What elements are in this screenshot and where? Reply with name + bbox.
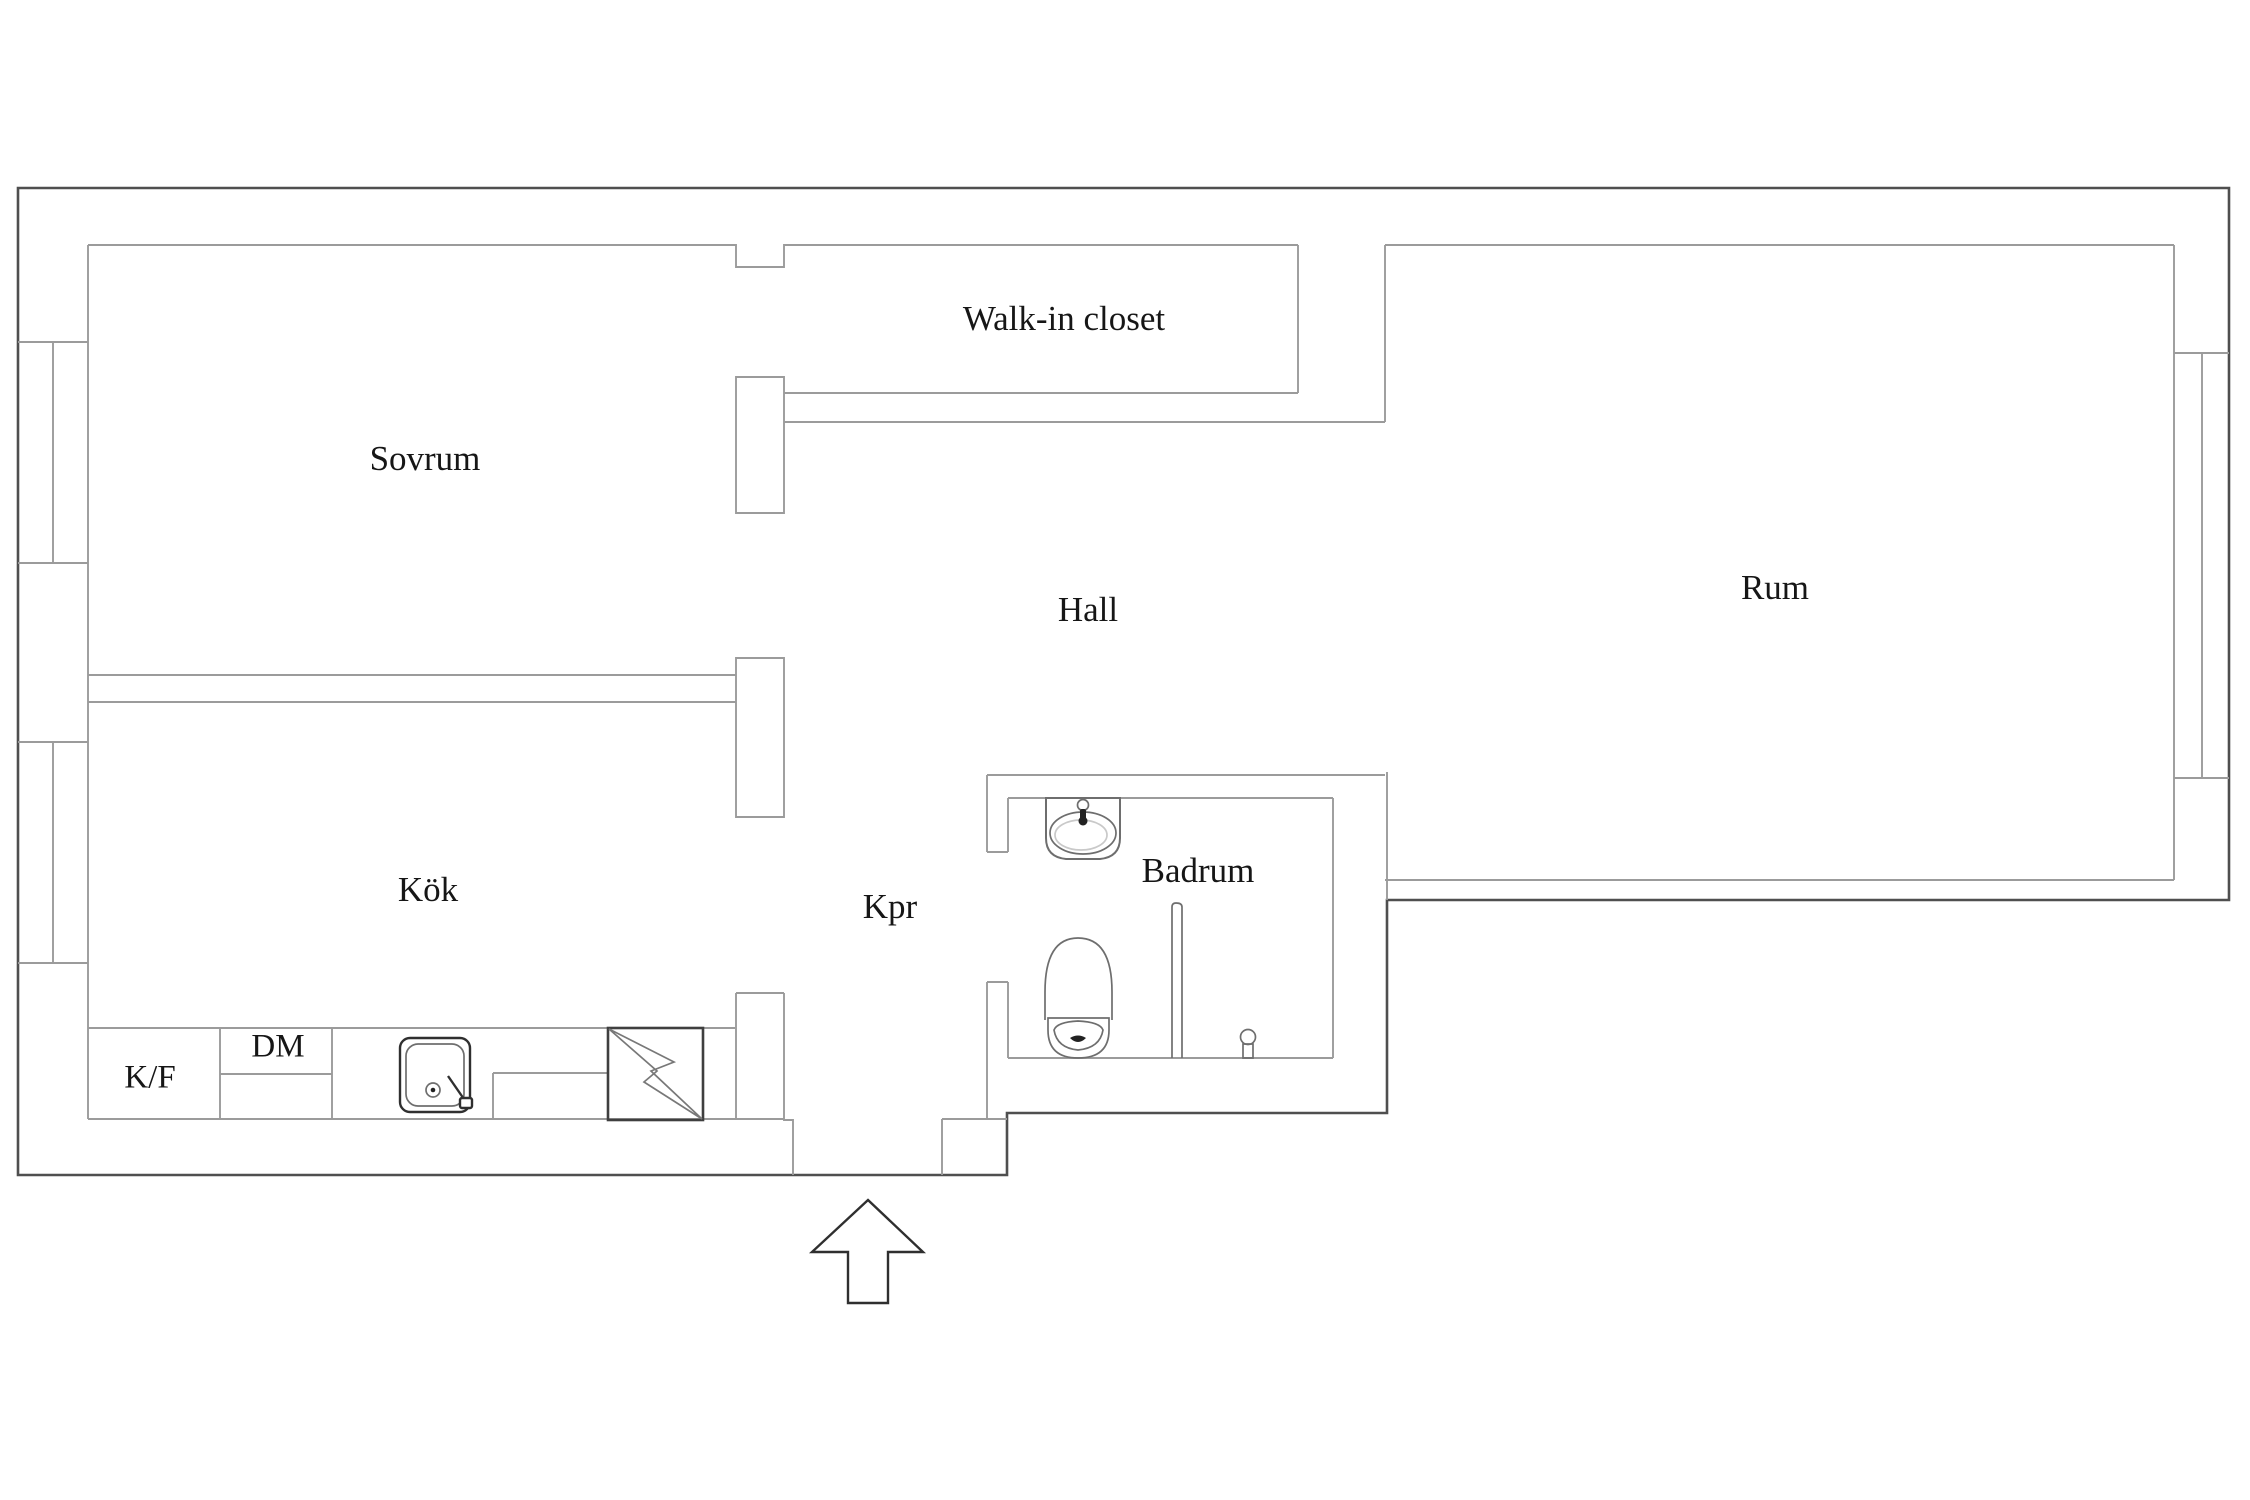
label-badrum: Badrum bbox=[1142, 851, 1255, 890]
right-window bbox=[2174, 353, 2229, 778]
toilet-seat-arc bbox=[1054, 1021, 1103, 1050]
washbasin-icon bbox=[1046, 798, 1120, 859]
floor-plan-drawing: Sovrum Walk-in closet Hall Rum Kök Kpr B… bbox=[0, 0, 2250, 1500]
shower-tap-head bbox=[1241, 1030, 1256, 1045]
toilet-flush bbox=[1070, 1036, 1086, 1043]
sovrum-kok-wall bbox=[88, 675, 736, 702]
floor-plan-page: Sovrum Walk-in closet Hall Rum Kök Kpr B… bbox=[0, 0, 2250, 1500]
label-sovrum: Sovrum bbox=[370, 439, 481, 478]
shower-area bbox=[1172, 903, 1256, 1058]
label-hall: Hall bbox=[1058, 590, 1119, 629]
bottom-inner-wall bbox=[88, 1119, 1007, 1175]
label-rum: Rum bbox=[1741, 568, 1809, 607]
left-wall-and-windows bbox=[18, 245, 88, 1119]
label-kpr: Kpr bbox=[863, 887, 918, 926]
entrance-arrow-icon bbox=[812, 1200, 923, 1303]
label-kok: Kök bbox=[398, 870, 459, 909]
central-wall-piers bbox=[736, 377, 793, 1175]
kitchen-sink-icon bbox=[400, 1038, 472, 1112]
washbasin-faucet-dot bbox=[1079, 817, 1088, 826]
label-kf: K/F bbox=[124, 1060, 175, 1096]
sink-drain-dot bbox=[431, 1088, 436, 1093]
shower-tap-stem bbox=[1243, 1044, 1253, 1058]
stove-lightning-bolt bbox=[609, 1029, 702, 1119]
label-closet: Walk-in closet bbox=[963, 299, 1166, 338]
top-room-walls bbox=[88, 245, 2174, 267]
shower-partition bbox=[1172, 903, 1182, 1058]
toilet-icon bbox=[1045, 938, 1112, 1058]
label-dm: DM bbox=[251, 1029, 304, 1065]
sink-faucet-base bbox=[460, 1098, 472, 1108]
stove-icon bbox=[608, 1028, 703, 1120]
toilet-bowl bbox=[1045, 938, 1112, 1020]
